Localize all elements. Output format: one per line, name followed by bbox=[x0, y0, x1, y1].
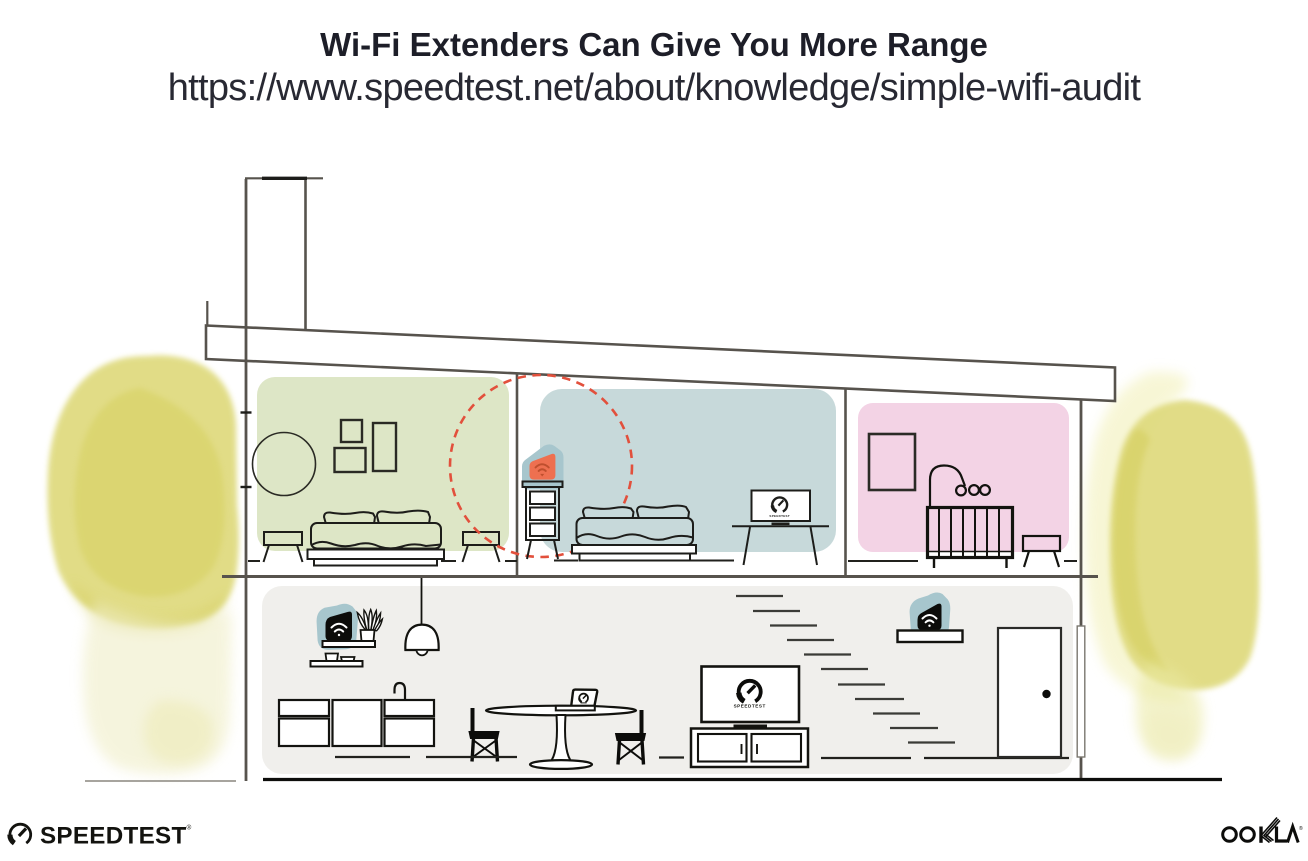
svg-text:SPEEDTEST: SPEEDTEST bbox=[734, 703, 766, 708]
svg-text:SPEEDTEST: SPEEDTEST bbox=[769, 514, 790, 518]
svg-text:SPEEDTEST: SPEEDTEST bbox=[40, 823, 187, 850]
svg-text:®: ® bbox=[1299, 825, 1303, 832]
svg-text:®: ® bbox=[187, 824, 192, 832]
